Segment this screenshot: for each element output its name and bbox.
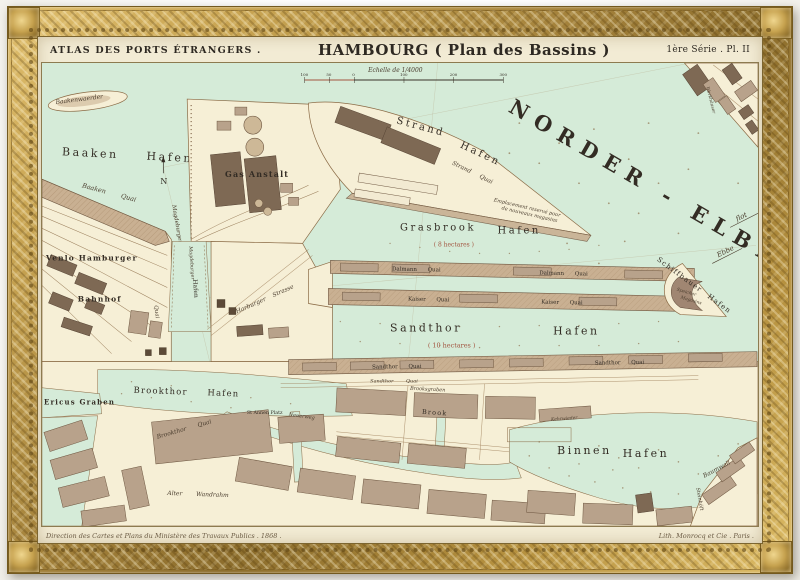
sandthor-label: Sandthor: [390, 322, 462, 335]
sandthor-quai-label-2: Sandthor Quai: [595, 360, 645, 367]
city-land: Sandthor Quai Sandthor Quai Sandthor Qua…: [42, 352, 758, 526]
scale-tick: 0: [352, 72, 355, 77]
dalmann-quai-label-1: Dalmann Quai: [392, 266, 441, 273]
scale-tick: 100: [301, 72, 309, 77]
scale-tick: 100: [400, 72, 408, 77]
publisher-imprint-left: Direction des Cartes et Plans du Ministè…: [46, 532, 282, 540]
gold-frame: ATLAS DES PORTS ÉTRANGERS . HAMBOURG ( P…: [7, 6, 793, 574]
print-footer: Direction des Cartes et Plans du Ministè…: [38, 528, 762, 543]
publisher-imprint-right: Lith. Monrocq et Cie . Paris .: [659, 532, 754, 540]
map-body: Werkhäuser NORDER - ELBE flot Ebbe Echel…: [41, 62, 759, 527]
bahnhof-label: Bahnhof: [78, 294, 122, 303]
sandthor-quai-label-1: Sandthor Quai: [372, 364, 422, 371]
binnen-label: Binnen: [557, 444, 612, 457]
st-annen-platz-label: St Annen Platz: [247, 410, 283, 416]
ericus-graben-label: Ericus Graben: [44, 398, 115, 407]
magdeburger-hafen-label2: Hafen: [191, 279, 199, 298]
print-header: ATLAS DES PORTS ÉTRANGERS . HAMBOURG ( P…: [38, 37, 762, 61]
sandthor-quai-label-3: Sandthor Quai: [370, 379, 418, 385]
sandthor-hafen-label2: Hafen: [553, 325, 600, 338]
gas-anstalt-label: Gas Anstalt: [225, 170, 289, 179]
kaiser-quai-label-1: Kaiser Quai: [408, 296, 450, 303]
atlas-series-title: ATLAS DES PORTS ÉTRANGERS .: [50, 45, 262, 56]
venlo-hamburger-label: Venlo Hamburger: [45, 253, 138, 262]
map-title: HAMBOURG ( Plan des Bassins ): [318, 41, 610, 59]
plate-number: 1ère Série . Pl. II: [666, 45, 750, 55]
framed-map-photo: ATLAS DES PORTS ÉTRANGERS . HAMBOURG ( P…: [0, 0, 800, 580]
grasbrook-label: Grasbrook: [400, 222, 476, 233]
scale-tick: 200: [450, 72, 458, 77]
scale-label: Echelle de 1/4000: [367, 67, 423, 74]
sandthor-area-label: ( 10 hectares ): [428, 342, 476, 350]
grasbrook-hafen-label2: Hafen: [497, 225, 540, 236]
grasbrook-area-label: ( 8 hectares ): [434, 241, 474, 248]
binnen-hafen-label2: Hafen: [623, 447, 670, 460]
scale-tick: 50: [326, 72, 332, 77]
map-print: ATLAS DES PORTS ÉTRANGERS . HAMBOURG ( P…: [37, 36, 763, 544]
north-label: N: [160, 177, 167, 186]
scale-tick: 300: [499, 72, 507, 77]
dalmann-quai-label-2: Dalmann Quai: [539, 270, 588, 277]
kaiser-quai-label-2: Kaiser Quai: [541, 300, 583, 307]
hamburg-basins-map: Werkhäuser NORDER - ELBE flot Ebbe Echel…: [42, 63, 758, 526]
